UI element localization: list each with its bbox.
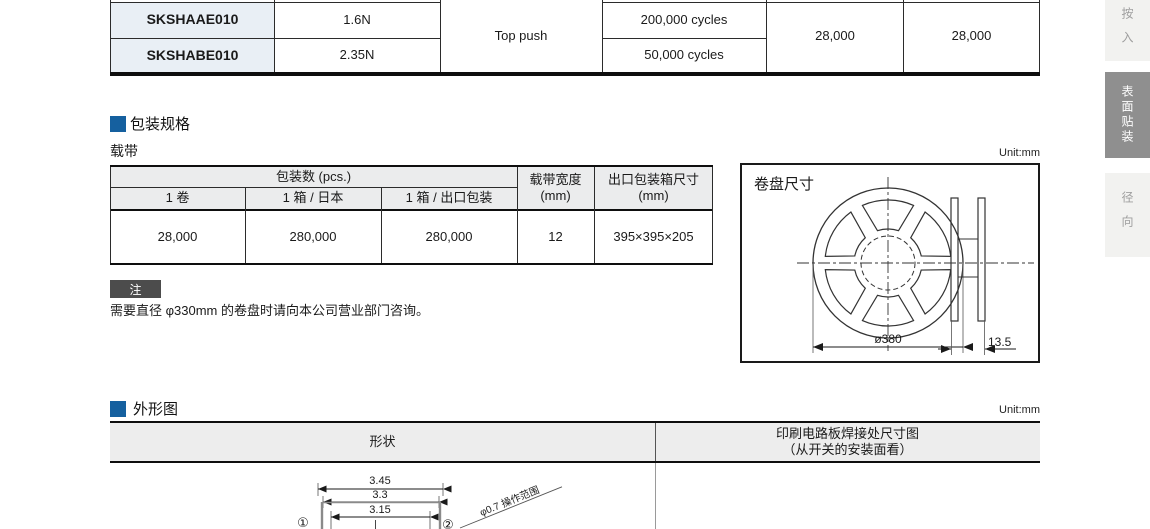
tape-width-header-cell: 载带宽度 (mm) [517,167,594,209]
operating-range-callout: φ0.7 操作范围 [455,475,562,528]
outline-table-header: 形状 印刷电路板焊接处尺寸图 （从开关的安装面看） [110,421,1040,463]
divider [602,2,1039,3]
header-line: 载带宽度 [529,172,581,188]
divider [602,38,766,39]
tab-radial[interactable]: 径向 [1105,173,1150,257]
divider [274,0,275,73]
reel-diameter-dim: ø380 [874,332,902,346]
header-line: (mm) [540,188,570,204]
operating-force-cell: 1.6N [275,2,439,38]
section-marker-icon [110,401,126,417]
shape-col-header: 形状 [110,423,655,461]
divider [110,165,713,167]
header-line: 出口包装箱尺寸 [608,172,699,188]
part-number-cell: SKSHABE010 [111,39,274,72]
export-box-header-cell: 出口包装箱尺寸 (mm) [594,167,713,209]
operating-range-label: φ0.7 操作范围 [478,483,541,519]
section-title: 包装规格 [130,113,190,134]
japan-col-header: 1 箱 / 日本 [245,188,381,209]
reel-dimensions-box: 卷盘尺寸 ø380 [740,163,1040,363]
ratings-table: SKSHAAE010 SKSHABE010 1.6N 2.35N Top pus… [110,0,1040,76]
tape-width-cell: 12 [517,211,594,263]
divider [110,0,111,73]
divider [381,187,382,263]
tab-label: 表面贴装 [1119,85,1136,145]
pcb-col-header: 印刷电路板焊接处尺寸图 （从开关的安装面看） [655,423,1040,461]
operating-life-cell: 50,000 cycles [603,39,765,72]
part-number-cell: SKSHAAE010 [111,2,274,38]
divider [110,461,1040,463]
tab-label: 按入 [1119,7,1136,55]
unit-label: Unit:mm [960,404,1040,416]
divider [517,167,518,263]
reel-front-view [797,177,1034,353]
section-marker-icon [110,116,126,132]
tab-surface-mount[interactable]: 表面贴装 [1105,72,1150,158]
tab-label: 径向 [1119,191,1136,239]
qty-per-reel-cell: 28,000 [110,211,245,263]
switch-outline-drawing: 3.45 3.3 3.15 ① ② φ0.7 操作范围 [250,465,670,529]
divider [110,38,440,39]
callout-1: ① [297,515,309,529]
export-col-header: 1 箱 / 出口包装 [381,188,517,209]
divider [110,421,1040,423]
divider [602,0,603,73]
operating-force-cell: 2.35N [275,39,439,72]
divider [245,187,246,263]
divider [110,167,111,263]
dim-315: 3.15 [369,504,390,516]
dim-345: 3.45 [369,475,390,487]
header-line: （从开关的安装面看） [782,442,912,458]
reel-col-header: 1 卷 [110,188,245,209]
unit-label: Unit:mm [960,147,1040,159]
divider [110,209,713,211]
note-badge: 注 [110,280,161,298]
section-title: 外形图 [133,398,178,419]
header-line: 印刷电路板焊接处尺寸图 [776,426,919,442]
divider [903,0,904,73]
packaging-table: 包装数 (pcs.) 载带宽度 (mm) 出口包装箱尺寸 (mm) 1 卷 1 … [110,165,713,265]
operating-direction-cell: Top push [441,0,601,72]
tab-push-in[interactable]: 按入 [1105,0,1150,61]
qty-per-box-japan-cell: 280,000 [245,211,381,263]
carrier-tape-label: 载带 [110,141,138,161]
note-text: 需要直径 φ330mm 的卷盘时请向本公司营业部门咨询。 [110,300,429,319]
section-heading-packaging: 包装规格 [110,113,190,134]
packing-qty-cell: 28,000 [904,0,1039,72]
packing-qty-cell: 28,000 [767,0,903,72]
divider [110,263,713,265]
operating-life-cell: 200,000 cycles [603,2,765,38]
divider [1039,0,1040,73]
datasheet-page: SKSHAAE010 SKSHABE010 1.6N 2.35N Top pus… [0,0,1150,529]
divider [110,2,440,3]
divider [110,72,1040,76]
callout-2: ② [442,517,454,529]
divider [110,187,517,188]
divider [712,167,713,263]
box-size-cell: 395×395×205 [594,211,713,263]
section-heading-outline: 外形图 [110,398,178,419]
header-line: (mm) [638,188,668,204]
dim-33: 3.3 [372,489,387,501]
divider [766,0,767,73]
group-header-cell: 包装数 (pcs.) [110,167,517,187]
reel-width-dim: 13.5 [988,335,1012,349]
divider [440,0,441,73]
reel-box-title: 卷盘尺寸 [754,175,814,193]
reel-drawing: 卷盘尺寸 ø380 [742,165,1038,361]
divider [594,167,595,263]
divider [655,423,656,461]
qty-per-box-export-cell: 280,000 [381,211,517,263]
